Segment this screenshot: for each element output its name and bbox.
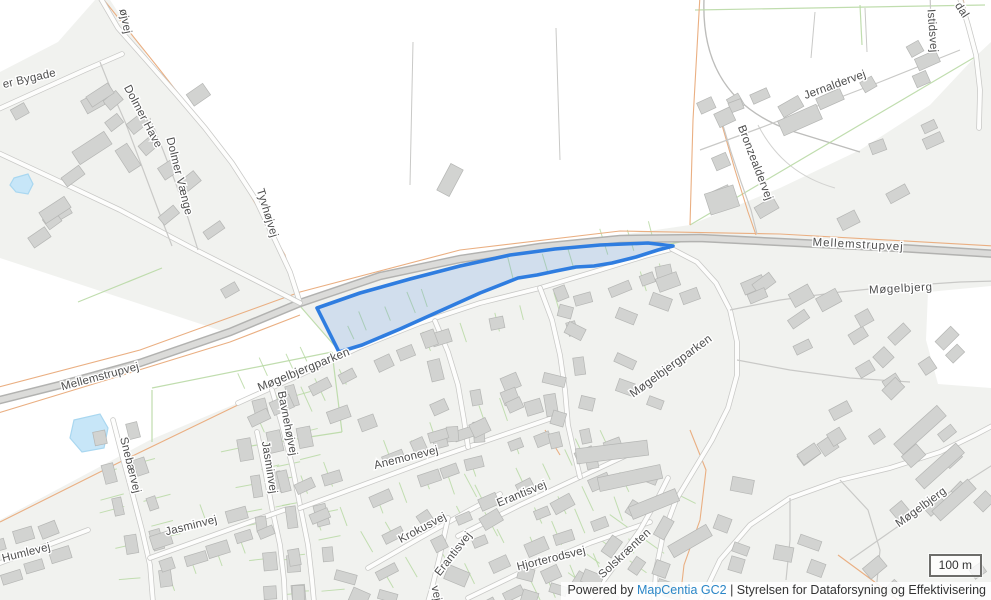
map-canvas[interactable]: øjvejer BygadeDolmer HaveDolmer VængeTyv… bbox=[0, 0, 991, 600]
attribution-link[interactable]: MapCentia GC2 bbox=[637, 583, 727, 597]
attribution-bar: Powered by MapCentia GC2 | Styrelsen for… bbox=[561, 582, 991, 600]
map-tiles: øjvejer BygadeDolmer HaveDolmer VængeTyv… bbox=[0, 0, 991, 600]
scale-label: 100 m bbox=[939, 558, 972, 572]
attribution-agency: Styrelsen for Dataforsyning og Effektivi… bbox=[737, 583, 986, 597]
scale-control: 100 m bbox=[929, 554, 982, 577]
attribution-powered-by: Powered by bbox=[567, 583, 633, 597]
attribution-separator: | bbox=[730, 583, 733, 597]
